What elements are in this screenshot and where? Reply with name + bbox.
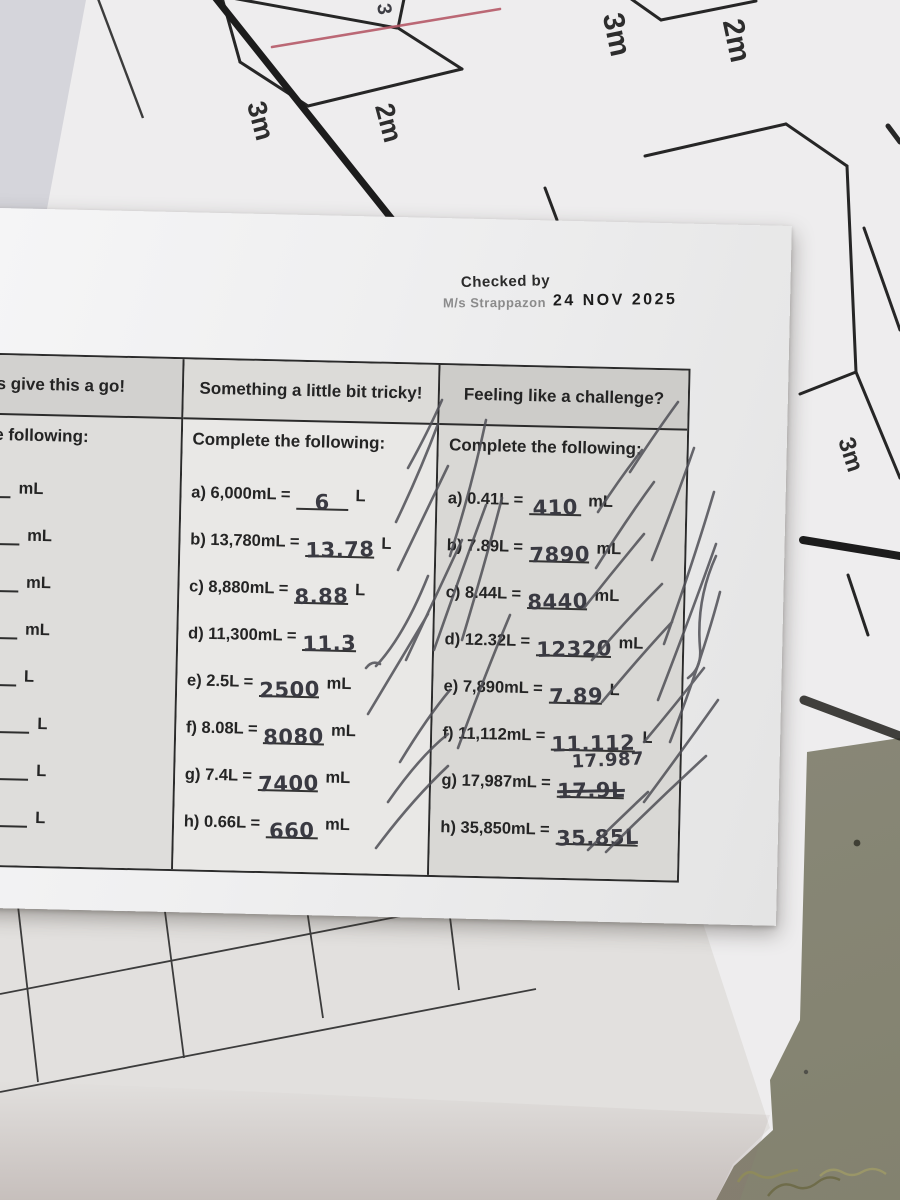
desk-speck (804, 1070, 808, 1074)
exercise-row: b) 7.89L =7890mL (446, 522, 685, 574)
answer-blank: 8.88 (294, 575, 348, 604)
exercise-row: a) 0.41L =410mL (447, 475, 686, 527)
exercise-prompt: g) 7.4L = (185, 765, 253, 786)
stamp-signature: M/s Strappazon (443, 295, 546, 310)
handwritten-answer: 12320 (536, 638, 612, 661)
header-easy: s give this a go! (0, 354, 184, 418)
exercise-prompt: h) 0.66L = (184, 812, 261, 833)
unit-label: mL (594, 587, 619, 607)
stamp-date: 24 NOV 2025 (553, 291, 678, 311)
dimension-text: 3m (832, 434, 868, 475)
grid-lines (0, 893, 536, 1092)
unit-label: L (24, 668, 35, 687)
handwritten-answer: 7890 (529, 544, 590, 566)
answer-blank: 11.3 (302, 622, 356, 651)
answer-blank (0, 761, 28, 780)
answer-blank (0, 714, 30, 733)
exercise-prompt: e) 2.5L = (187, 671, 254, 691)
unit-label: L (609, 681, 620, 700)
column-tricky: Complete the following: a) 6,000mL =6L b… (173, 417, 440, 875)
header-challenge: Feeling like a challenge? (440, 365, 689, 429)
exercise-prompt: a) 6,000mL = (191, 483, 291, 504)
exercise-row: e) 2.5L =2500mL (186, 657, 432, 710)
conversion-table: s give this a go! Something a little bit… (0, 352, 691, 883)
right-paper-edge (804, 700, 900, 736)
answer-blank (0, 526, 19, 545)
grid-sheet (0, 878, 770, 1200)
answer-blank: 17.9L17.987 (556, 769, 624, 799)
column-title: ete the following: (0, 424, 181, 469)
exercise-row: L =L (0, 699, 174, 751)
exercise-prompt: f) 11,112mL = (442, 724, 545, 745)
unit-label: mL (27, 527, 52, 547)
answer-blank (0, 667, 16, 686)
handwritten-answer: 7400 (258, 773, 319, 795)
handwritten-note: 3 (371, 2, 395, 16)
exercise-row: e) 7,890mL =7.89L (443, 663, 682, 715)
exercise-row: h) 35,850mL =35.85L (440, 804, 679, 856)
unit-label: mL (325, 769, 350, 789)
answer-blank: 2500 (259, 669, 320, 698)
desk-screw-dot (854, 840, 861, 847)
exercise-prompt: d) 12.32L = (444, 630, 530, 651)
exercise-row: d) 12.32L =12320mL (444, 616, 683, 668)
prism-drawing-top-left (221, 0, 462, 106)
answer-blank: 6 (296, 481, 349, 510)
answer-blank: 35.85L (555, 816, 638, 846)
exercise-prompt: b) 7.89L = (447, 536, 524, 557)
exercise-row: f) 11,112mL =11.112L (442, 710, 681, 762)
exercise-prompt: c) 8.44L = (445, 583, 521, 604)
dimension-label: 3m (595, 10, 637, 59)
exercise-prompt: f) 8.08L = (186, 718, 258, 739)
handwritten-note-text: 3 (372, 2, 395, 16)
handwritten-answer: 8440 (527, 591, 588, 613)
unit-label: mL (25, 621, 50, 641)
header-tricky: Something a little bit tricky! (183, 359, 441, 423)
handwritten-answer: 660 (269, 820, 315, 842)
stamp-checked-by: Checked by (461, 272, 551, 291)
handwritten-answer: 2500 (259, 679, 320, 701)
column-title: Complete the following: (192, 429, 437, 475)
unit-label: L (37, 715, 48, 734)
exercise-prompt: h) 35,850mL = (440, 818, 550, 839)
column-challenge: Complete the following: a) 0.41L =410mL … (429, 423, 687, 881)
exercise-row: b) 13,780mL =13.78L (190, 516, 436, 569)
exercise-row: f) 8.08L =8080mL (185, 704, 431, 757)
exercise-row: a) 6,000mL =6L (191, 469, 437, 522)
thin-drawn-line (97, 0, 143, 118)
exercise-row: c) 8.44L =8440mL (445, 569, 684, 621)
exercise-prompt: d) 11,300mL = (188, 624, 297, 645)
unit-label: mL (588, 492, 613, 512)
handwritten-answer: 8.88 (294, 585, 348, 607)
dimension-label: 3m (240, 98, 280, 144)
column-easy: ete the following: mL =mL =mL =mL =L L =… (0, 412, 183, 869)
exercise-row: c) 8,880mL =8.88L (189, 563, 435, 616)
answer-blank: 7400 (258, 763, 319, 792)
dimension-text: 2m (369, 100, 408, 145)
handwritten-answer: 7.89 (549, 685, 603, 707)
exercise-row: L =L (0, 793, 172, 845)
checked-by-stamp: Checked by M/s Strappazon 24 NOV 2025 (443, 272, 693, 335)
unit-label: mL (596, 540, 621, 560)
unit-label: L (642, 729, 653, 748)
table-body-row: ete the following: mL =mL =mL =mL =L L =… (0, 412, 687, 881)
handwritten-answer: 6 (315, 492, 331, 513)
unit-label: mL (26, 574, 51, 594)
exercise-row: d) 11,300mL =11.3 (188, 610, 434, 663)
exercise-prompt: b) 13,780mL = (190, 530, 300, 551)
column-title: Complete the following: (448, 435, 687, 480)
unit-label: L (36, 762, 47, 781)
exercise-row: mL (0, 464, 180, 516)
answer-blank (0, 808, 27, 827)
answer-blank: 8440 (527, 581, 588, 610)
unit-label: mL (325, 816, 350, 836)
exercise-row: g) 17,987mL =17.9L17.987 (441, 757, 680, 809)
exercise-prompt: c) 8,880mL = (189, 577, 289, 598)
answer-blank: 7890 (529, 534, 590, 563)
unit-label: L (355, 581, 366, 600)
worksheet-sheet: Checked by M/s Strappazon 24 NOV 2025 s … (0, 207, 792, 926)
thick-drawn-line (803, 540, 900, 556)
answer-blank (0, 620, 17, 639)
answer-blank: 11.112 (551, 722, 636, 752)
dimension-text: 2m (716, 16, 757, 65)
handwritten-answer: 13.78 (305, 539, 374, 561)
handwritten-answer-struck: 17.9L (557, 779, 625, 801)
exercise-row: =mL (0, 511, 179, 563)
exercise-row: =L (0, 652, 176, 704)
answer-blank: 13.78 (305, 529, 375, 559)
answer-blank: 660 (266, 810, 319, 839)
exercise-prompt: a) 0.41L = (448, 489, 524, 510)
handwritten-answer: 11.3 (302, 633, 356, 655)
exercise-prompt: e) 7,890mL = (443, 677, 543, 698)
unit-label: mL (326, 675, 351, 695)
dimension-label: 2m (368, 100, 408, 146)
dimension-label: 3m (831, 434, 868, 476)
handwritten-answer: 35.85L (555, 826, 638, 849)
exercise-row: L =L (0, 746, 173, 798)
answer-blank: 8080 (263, 716, 324, 745)
exercise-row: =mL (0, 558, 178, 610)
unit-label: L (35, 809, 46, 828)
unit-label: mL (18, 479, 43, 499)
unit-label: L (355, 487, 366, 506)
answer-blank: 12320 (536, 628, 612, 658)
handwritten-answer: 8080 (263, 726, 324, 748)
prism-drawing-top-center (627, 0, 756, 20)
photo-of-worksheets: { "stamp": { "checked_by": "Checked by",… (0, 0, 900, 1200)
exercise-row: h) 0.66L =660mL (183, 798, 429, 851)
answer-blank: 410 (529, 487, 582, 516)
dimension-label: 2m (715, 16, 757, 65)
answer-blank (0, 479, 11, 498)
handwritten-answer: 410 (532, 497, 578, 519)
exercise-row: g) 7.4L =7400mL (184, 751, 430, 804)
unit-label: L (381, 535, 392, 554)
grid-sheet-shadow (0, 1080, 770, 1200)
unit-label: mL (618, 634, 643, 654)
handwritten-correction: 17.987 (571, 750, 644, 771)
dimension-text: 3m (596, 10, 637, 59)
answer-blank: 7.89 (548, 675, 602, 704)
red-pen-mark (272, 9, 500, 47)
answer-blank (0, 573, 18, 592)
exercise-prompt: g) 17,987mL = (441, 771, 551, 792)
unit-label: mL (331, 722, 356, 742)
dimension-text: 3m (241, 98, 280, 143)
exercise-row: =mL (0, 605, 177, 657)
